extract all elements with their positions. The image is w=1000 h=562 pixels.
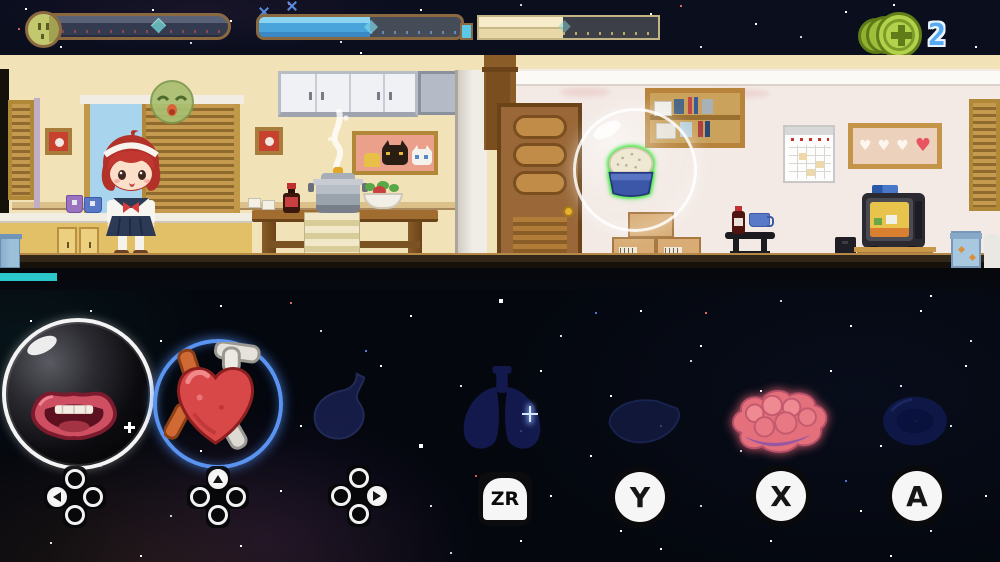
cooking-pot	[313, 167, 363, 213]
zr-button[interactable]: ZR	[478, 472, 532, 526]
soy-sauce-bottle	[283, 183, 300, 213]
face-icon	[25, 11, 62, 48]
drowsy-emote	[148, 78, 196, 126]
dpad-right-button[interactable]	[83, 487, 103, 507]
dpad-left-button[interactable]	[190, 487, 210, 507]
x-button-label: X	[756, 471, 806, 521]
up-arrow-icon	[213, 475, 223, 483]
right-arrow-icon	[373, 491, 381, 501]
cat-picture-frame	[352, 131, 438, 175]
dpad-up-button[interactable]	[208, 469, 228, 489]
floor	[0, 253, 1000, 268]
face-mouth	[41, 34, 44, 39]
energy-meter	[477, 15, 660, 40]
books	[694, 97, 698, 114]
small-picture-frame	[255, 127, 283, 155]
wall-calendar	[783, 125, 835, 183]
books	[688, 97, 692, 114]
wooden-door	[497, 103, 582, 265]
lungs-organ[interactable]	[449, 366, 555, 460]
dpad-right-button[interactable]	[367, 486, 387, 506]
coin-plus-icon	[876, 12, 922, 58]
purple-mug	[66, 195, 83, 213]
dpad-up-button[interactable]	[349, 468, 369, 488]
cabinet-door	[57, 227, 77, 255]
mood-meter	[25, 11, 235, 42]
left-shutter-window	[8, 100, 34, 200]
blue-mug	[749, 213, 770, 227]
mouth-organ[interactable]	[2, 318, 154, 470]
cell-organ[interactable]	[879, 392, 951, 450]
fridge-panel	[455, 70, 487, 253]
dpad-down-button[interactable]	[208, 505, 228, 525]
water-meter	[256, 14, 464, 40]
dpad-right-control[interactable]	[328, 465, 390, 527]
dpad-right-button[interactable]	[226, 487, 246, 507]
gray-cabinet	[418, 71, 458, 115]
dpad-up-button[interactable]	[65, 469, 85, 489]
sugar-cube	[262, 200, 275, 210]
blue-bin	[0, 237, 20, 268]
red-heart-icon: ♥	[915, 137, 931, 155]
task-progress-strip	[0, 268, 1000, 290]
wall-molding	[498, 71, 1000, 86]
dpad-left-control[interactable]	[44, 466, 106, 528]
stars	[0, 290, 2, 292]
dpad-left-button[interactable]	[47, 487, 67, 507]
salad-bowl	[363, 181, 403, 209]
books	[702, 99, 713, 114]
left-arrow-icon	[53, 492, 61, 502]
right-shutter-window	[969, 99, 1000, 211]
game-screen: 2	[0, 0, 1000, 562]
plus-sparkle-icon	[124, 422, 135, 433]
dpad-left-button[interactable]	[331, 486, 351, 506]
white-heart-icon: ♥	[859, 139, 872, 153]
dpad-down-button[interactable]	[65, 505, 85, 525]
books	[674, 99, 684, 114]
stars	[0, 0, 2, 2]
water-fill	[259, 17, 370, 37]
energy-ticks	[563, 32, 655, 35]
tv-screen	[870, 202, 909, 237]
black-cat	[382, 145, 408, 165]
books	[705, 121, 710, 137]
blue-storage-box	[951, 231, 981, 268]
white-heart-icon: ♥	[896, 139, 909, 153]
dpad-up-control[interactable]	[187, 466, 249, 528]
dpad-down-button[interactable]	[349, 504, 369, 524]
white-heart-icon: ♥	[878, 139, 891, 153]
a-button-label: A	[892, 471, 942, 521]
books	[698, 121, 703, 137]
door-knob	[563, 206, 574, 217]
cross-star-icon	[284, 0, 301, 14]
heart-organ[interactable]	[164, 342, 268, 456]
small-picture-frame	[45, 128, 72, 155]
stomach-organ[interactable]	[303, 370, 385, 450]
hearts-picture: ♥ ♥ ♥ ♥	[848, 123, 942, 169]
yellow-cat	[364, 153, 380, 167]
coin-count: 2	[928, 18, 946, 53]
a-button[interactable]: A	[886, 465, 948, 527]
wall-stain	[560, 87, 610, 97]
cola-bottle	[731, 206, 746, 234]
task-progress-bar	[0, 273, 57, 281]
energy-fill	[479, 17, 563, 38]
water-ticks	[370, 31, 457, 34]
bottle-cap-icon	[460, 23, 473, 40]
television	[862, 193, 925, 248]
house-scene: ♥ ♥ ♥ ♥	[0, 55, 1000, 268]
lips-icon	[26, 384, 122, 440]
rice-bowl-item[interactable]	[604, 141, 658, 199]
sparkle-icon	[522, 406, 538, 422]
y-button-label: Y	[615, 472, 665, 522]
y-button[interactable]: Y	[609, 466, 671, 528]
face-eye	[46, 23, 49, 30]
liver-organ[interactable]	[602, 392, 688, 456]
mood-meter-track	[39, 13, 231, 40]
face-eye	[38, 23, 41, 30]
zr-button-label: ZR	[483, 478, 527, 520]
player-character	[92, 130, 170, 260]
x-button[interactable]: X	[750, 465, 812, 527]
curtain-strip	[34, 98, 40, 208]
white-jar	[984, 234, 1000, 268]
white-cat	[412, 149, 432, 165]
brain-organ[interactable]	[725, 386, 833, 456]
sugar-cube	[248, 198, 261, 208]
